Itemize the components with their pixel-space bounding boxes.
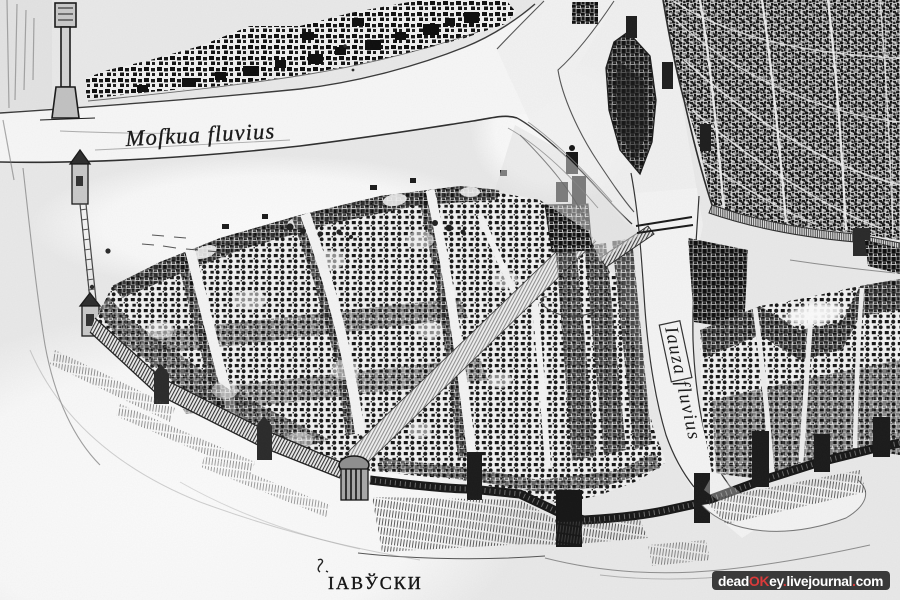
- svg-text:deadOKey.livejournal.com: deadOKey.livejournal.com: [718, 574, 883, 589]
